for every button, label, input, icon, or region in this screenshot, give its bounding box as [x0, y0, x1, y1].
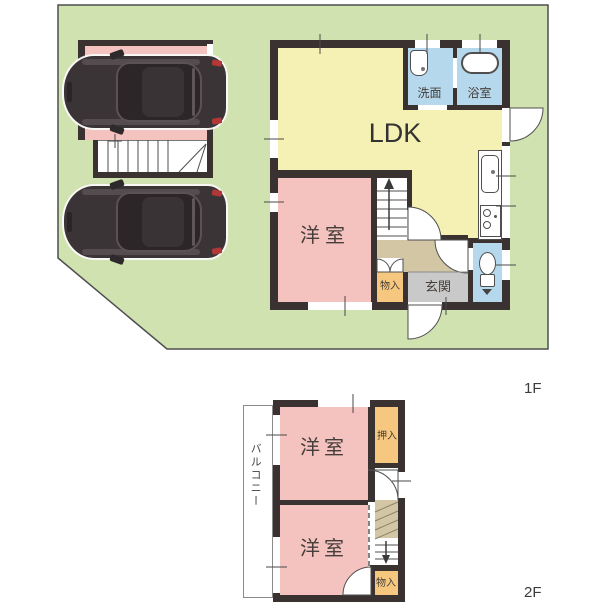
window — [398, 472, 405, 498]
floor1-label: 1F — [524, 380, 542, 397]
label-closet-2f: 押入 — [376, 431, 398, 442]
stove-burner — [483, 209, 491, 217]
floor2-label: 2F — [524, 584, 542, 601]
car-2 — [64, 186, 226, 258]
window — [308, 302, 372, 310]
wall — [280, 500, 368, 505]
window — [270, 120, 278, 158]
car-rear-window — [192, 198, 195, 246]
wall — [375, 463, 398, 468]
closet-door-area — [377, 258, 403, 272]
kitchen-faucet — [491, 170, 495, 174]
wall — [441, 235, 468, 240]
wall — [270, 302, 510, 310]
wall — [407, 178, 412, 210]
door-opening — [468, 248, 473, 270]
label-balcony: バルコニー — [249, 420, 261, 530]
stair-landing-2f — [375, 468, 398, 500]
kitchen-sink — [481, 155, 499, 193]
front-door-opening — [408, 302, 442, 310]
door-opening — [418, 105, 447, 110]
window — [270, 193, 278, 212]
label-washroom: 洗面 — [416, 87, 443, 100]
bathtub — [461, 52, 499, 74]
wall — [403, 272, 408, 302]
car-roof — [142, 67, 184, 117]
window — [502, 250, 510, 280]
toilet-tank — [480, 274, 495, 287]
window — [273, 537, 280, 593]
window — [462, 40, 497, 48]
door-opening — [502, 108, 510, 142]
window — [318, 400, 370, 407]
car-front-bumper — [67, 82, 72, 102]
stove-knob — [494, 215, 497, 218]
toilet-bowl — [479, 252, 496, 275]
label-ldk: LDK — [355, 119, 435, 149]
label-storage-2f: 物入 — [375, 578, 397, 589]
label-storage-1f: 物入 — [379, 281, 401, 292]
car-roof — [142, 197, 184, 247]
label-bathroom: 浴室 — [466, 87, 493, 100]
car-1 — [64, 56, 226, 128]
wall — [270, 170, 412, 178]
window — [502, 146, 510, 238]
wall — [368, 407, 375, 502]
stairs-2f-winder — [375, 500, 398, 538]
exterior-stairs — [98, 140, 207, 173]
car-front-bumper — [67, 212, 72, 232]
stairs-1f — [377, 178, 407, 240]
label-bedroom-2f-b: 洋室 — [300, 538, 348, 560]
wall — [371, 178, 377, 302]
car-taillight — [212, 117, 223, 125]
stairs-2f — [375, 538, 398, 565]
floorplan-canvas: LDK 洋室 洗面 浴室 玄関 物入 洋室 洋室 押入 物入 バルコニー 1F … — [0, 0, 610, 610]
window — [415, 40, 440, 48]
carport-wall — [78, 40, 213, 46]
stove-burner — [483, 221, 491, 229]
washbasin-faucet — [421, 67, 425, 71]
car-rear-window — [192, 68, 195, 116]
stairs-wall — [93, 172, 213, 178]
wall — [403, 48, 408, 105]
window — [273, 415, 280, 465]
wall — [273, 595, 405, 602]
door-opening — [453, 58, 457, 88]
washbasin — [410, 50, 428, 76]
wall — [398, 400, 405, 602]
label-bedroom-2f-a: 洋室 — [300, 437, 348, 459]
car-taillight — [212, 247, 223, 255]
label-entrance: 玄関 — [423, 280, 453, 294]
label-bedroom-1f: 洋室 — [299, 225, 351, 247]
